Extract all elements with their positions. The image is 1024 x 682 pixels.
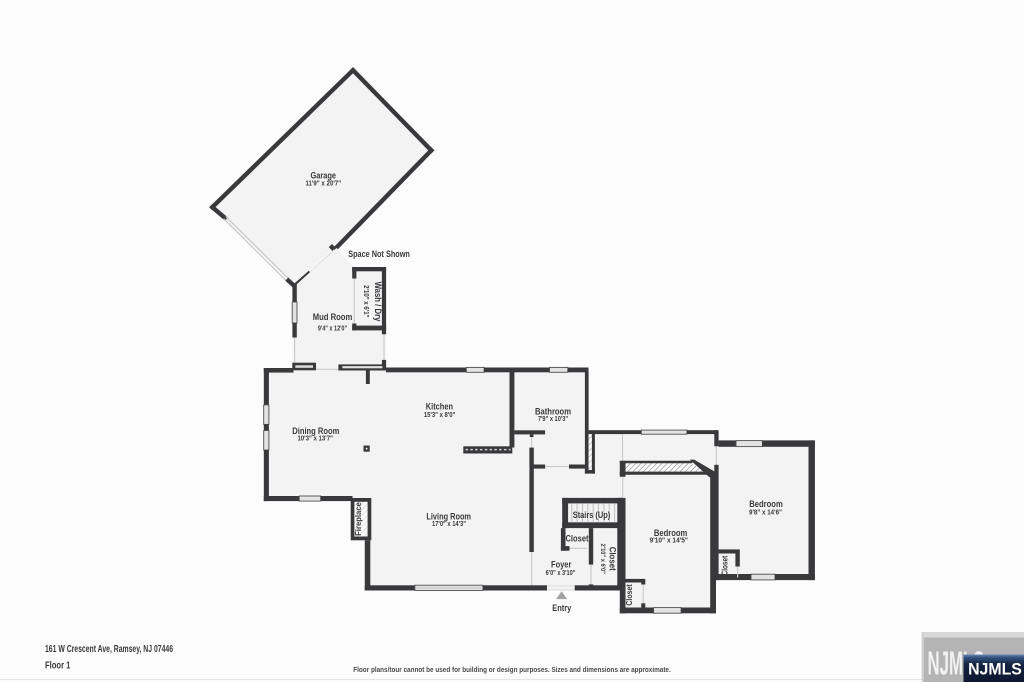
- svg-text:Floor 1: Floor 1: [45, 661, 71, 672]
- svg-text:NJMLS: NJMLS: [968, 661, 1022, 679]
- svg-text:10'3" x 13'7": 10'3" x 13'7": [297, 436, 333, 443]
- svg-text:Floor plans/tour cannot be use: Floor plans/tour cannot be used for buil…: [353, 665, 671, 674]
- svg-text:Fireplace: Fireplace: [353, 502, 363, 536]
- svg-text:2'10" x 6'0": 2'10" x 6'0": [599, 544, 606, 574]
- svg-text:15'3" x 8'0": 15'3" x 8'0": [424, 412, 455, 419]
- svg-text:Garage: Garage: [311, 171, 337, 181]
- svg-text:Space Not Shown: Space Not Shown: [348, 249, 410, 259]
- svg-text:2'10" x 6'1": 2'10" x 6'1": [362, 285, 369, 317]
- svg-text:Kitchen: Kitchen: [426, 402, 454, 412]
- svg-text:6'0" x 3'10": 6'0" x 3'10": [546, 570, 576, 577]
- svg-text:17'0" x 14'3": 17'0" x 14'3": [432, 521, 466, 528]
- svg-text:Stairs (Up): Stairs (Up): [573, 510, 611, 520]
- svg-text:Bedroom: Bedroom: [654, 528, 688, 538]
- svg-text:Entry: Entry: [552, 603, 571, 613]
- svg-text:Foyer: Foyer: [551, 559, 572, 569]
- svg-text:Closet: Closet: [624, 584, 634, 605]
- svg-text:Bedroom: Bedroom: [749, 499, 783, 509]
- svg-text:Wash / Dry: Wash / Dry: [373, 282, 383, 322]
- svg-text:7'9" x 10'3": 7'9" x 10'3": [538, 416, 568, 423]
- svg-text:Closet: Closet: [565, 533, 588, 543]
- svg-text:161 W Crescent Ave, Ramsey, NJ: 161 W Crescent Ave, Ramsey, NJ 07446: [45, 644, 173, 655]
- svg-text:11'9" x 20'7": 11'9" x 20'7": [305, 181, 341, 188]
- svg-text:Dining Room: Dining Room: [292, 426, 339, 436]
- svg-text:9'10" x 14'5": 9'10" x 14'5": [650, 537, 688, 544]
- svg-text:9'4" x 12'0": 9'4" x 12'0": [318, 325, 347, 332]
- svg-text:Closet: Closet: [607, 547, 617, 571]
- svg-text:Mud Room: Mud Room: [313, 312, 353, 322]
- svg-text:Closet: Closet: [719, 556, 729, 576]
- svg-text:9'8" x 14'6": 9'8" x 14'6": [749, 510, 782, 517]
